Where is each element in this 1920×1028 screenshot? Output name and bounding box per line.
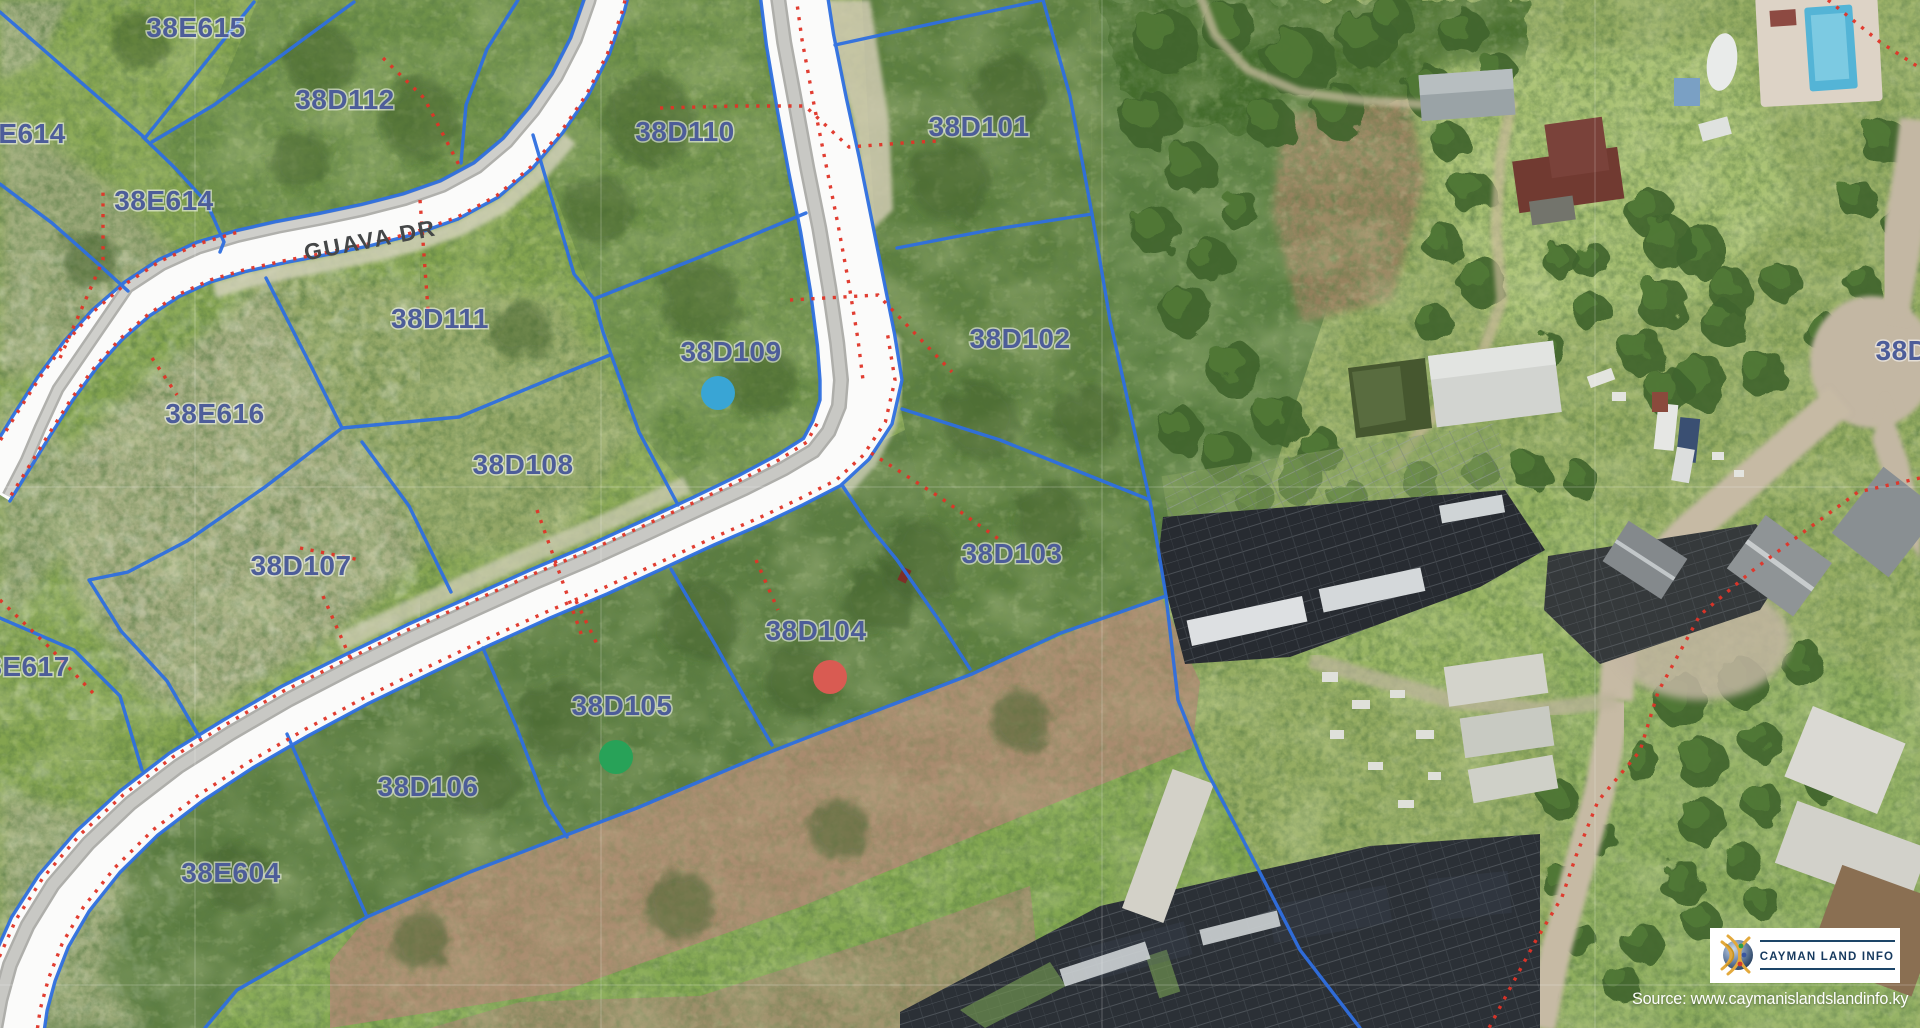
svg-text:38D107: 38D107 [250,550,351,581]
svg-text:38D112: 38D112 [295,84,395,115]
svg-text:38D111: 38D111 [391,303,489,334]
svg-text:38D108: 38D108 [472,449,573,480]
svg-text:38D104: 38D104 [765,615,866,646]
svg-text:38E604: 38E604 [181,857,281,888]
svg-text:38E614: 38E614 [0,118,66,149]
svg-text:38D105: 38D105 [571,690,672,721]
svg-text:38D109: 38D109 [680,336,781,367]
svg-text:38D102: 38D102 [969,323,1070,354]
svg-text:38E617: 38E617 [0,651,70,682]
svg-text:38D103: 38D103 [961,538,1062,569]
svg-text:38E616: 38E616 [165,398,265,429]
svg-text:38E615: 38E615 [146,12,246,43]
svg-text:38D106: 38D106 [377,771,478,802]
svg-text:38D101: 38D101 [928,111,1029,142]
svg-text:38D6: 38D6 [1876,335,1920,366]
svg-text:38E614: 38E614 [114,185,214,216]
svg-text:38D110: 38D110 [635,116,735,147]
svg-text:Source: www.caymanislandslandi: Source: www.caymanislandslandinfo.ky [1632,990,1909,1008]
svg-text:CAYMAN LAND INFO: CAYMAN LAND INFO [1760,951,1894,963]
